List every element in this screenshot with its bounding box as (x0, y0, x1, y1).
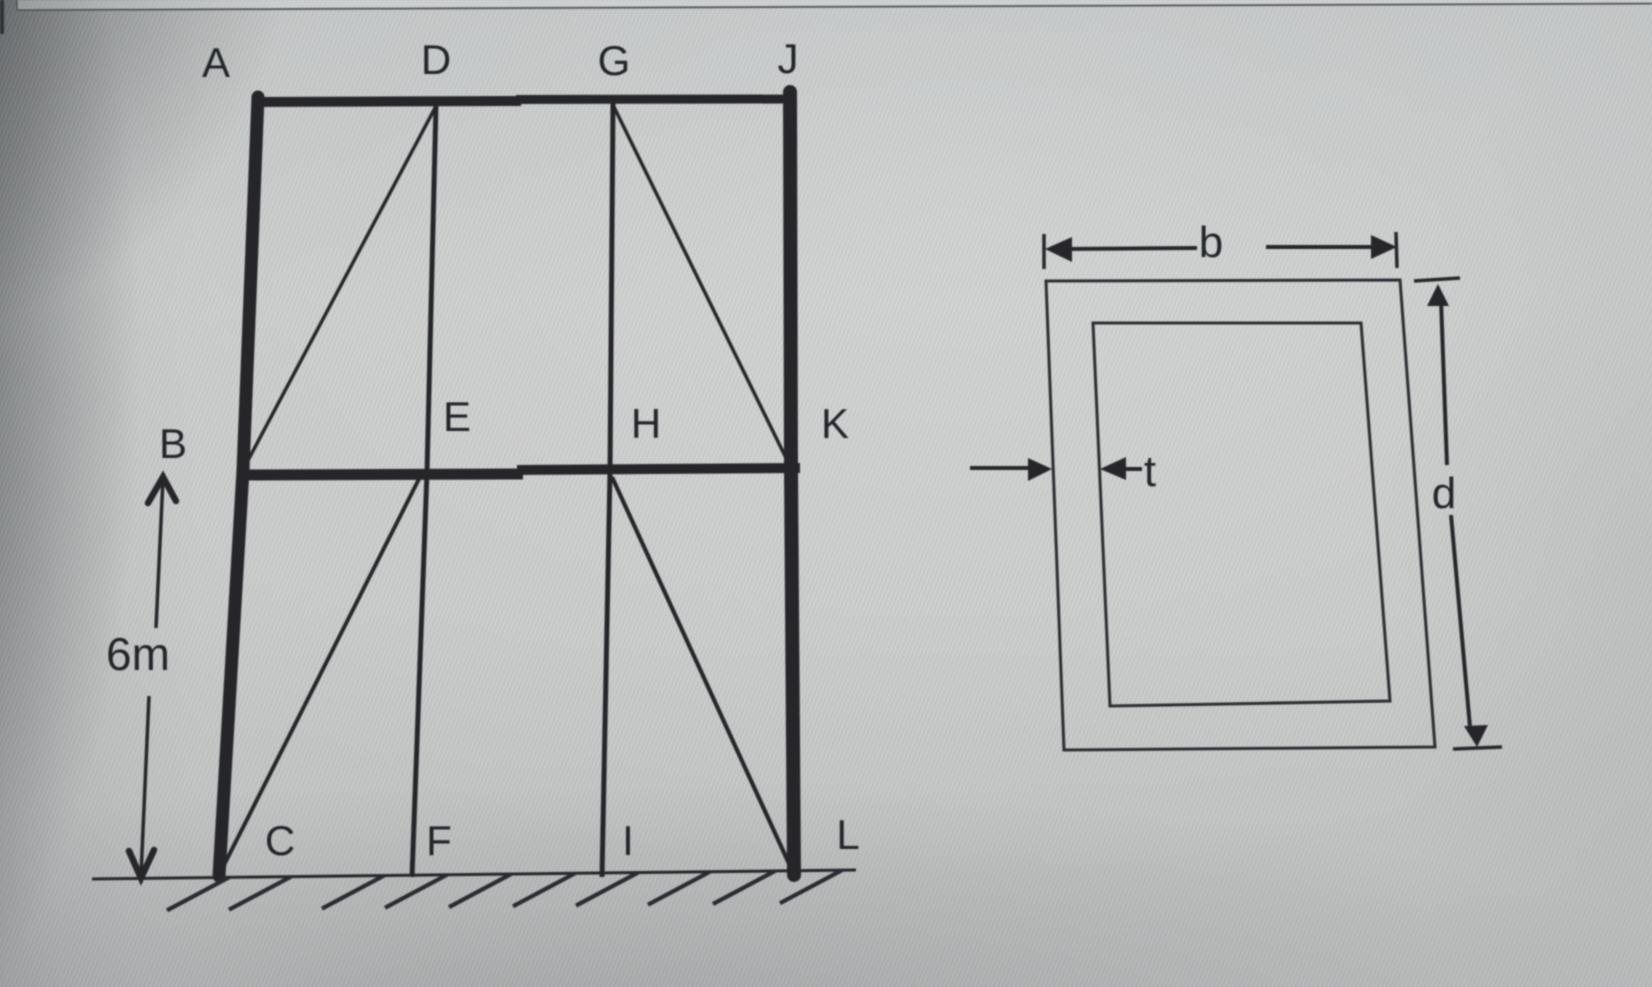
svg-text:C: C (265, 817, 295, 864)
svg-text:E: E (443, 393, 471, 440)
svg-text:I: I (622, 817, 634, 864)
svg-text:D: D (421, 36, 451, 83)
svg-text:H: H (631, 400, 661, 447)
svg-text:J: J (778, 35, 799, 82)
svg-text:B: B (159, 420, 187, 467)
svg-text:G: G (598, 37, 631, 84)
svg-text:d: d (1432, 469, 1456, 518)
svg-text:K: K (821, 400, 849, 447)
svg-text:t: t (1144, 447, 1156, 496)
svg-text:6m: 6m (106, 628, 170, 680)
svg-text:F: F (426, 817, 452, 864)
svg-text:b: b (1199, 218, 1223, 267)
svg-text:A: A (202, 39, 230, 86)
svg-text:L: L (836, 811, 859, 858)
